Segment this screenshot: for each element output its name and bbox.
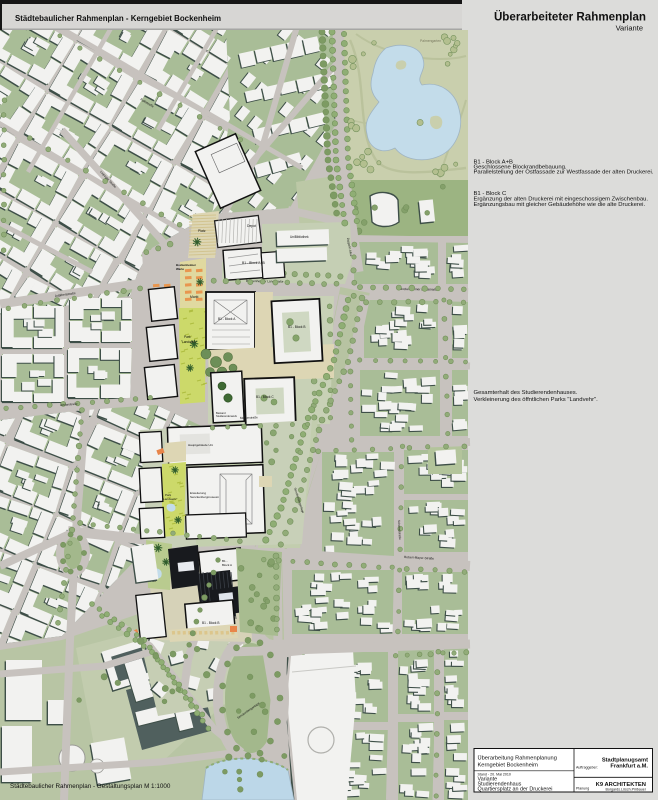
svg-text:Überarbeiteter Rahmenplan: Überarbeiteter Rahmenplan: [494, 11, 646, 24]
svg-text:B1 - Block C: B1 - Block C: [256, 395, 274, 399]
svg-text:B1 - Block B: B1 - Block B: [288, 325, 306, 329]
svg-text:B1 - Block A: B1 - Block A: [218, 317, 236, 321]
svg-text:Bockenheimer Landstraße: Bockenheimer Landstraße: [400, 287, 438, 292]
svg-text:Markt: Markt: [190, 295, 199, 299]
svg-text:Städtebaulicher Rahmenplan - K: Städtebaulicher Rahmenplan - Kerngebiet …: [15, 14, 221, 23]
svg-text:Warte: Warte: [176, 267, 184, 271]
svg-text:Variante: Variante: [616, 23, 643, 32]
svg-text:Block A: Block A: [222, 563, 232, 567]
svg-text:Mertonstraße: Mertonstraße: [240, 415, 258, 420]
svg-text:Überarbeitung Rahmenplanung: Überarbeitung Rahmenplanung: [478, 755, 557, 762]
svg-text:Gesamterhalt des Studierendenh: Gesamterhalt des Studierendenhauses.: [474, 390, 578, 396]
svg-text:Planung: Planung: [576, 787, 589, 791]
svg-text:B1 - Block B: B1 - Block B: [202, 621, 220, 625]
svg-text:B1 - Block A+B: B1 - Block A+B: [242, 261, 265, 265]
svg-text:Frankfurt a.M.: Frankfurt a.M.: [610, 763, 648, 769]
svg-text:"Landwehr": "Landwehr": [181, 340, 197, 344]
svg-text:Senckenbergmuseum: Senckenbergmuseum: [190, 495, 220, 499]
svg-text:Parallelstellung der Ostfassad: Parallelstellung der Ostfassade zur West…: [474, 170, 654, 176]
svg-text:UniBibliothek: UniBibliothek: [290, 235, 309, 239]
svg-text:Park: Park: [184, 335, 191, 339]
svg-text:Städtebaulicher Rahmenplan - G: Städtebaulicher Rahmenplan - Gestaltungs…: [10, 783, 171, 790]
svg-text:Ergänzungsbau mit gleicher Geb: Ergänzungsbau mit gleicher Gebäudehöhe w…: [474, 202, 646, 208]
svg-text:Depot: Depot: [247, 224, 256, 228]
svg-text:Kerngebiet Bockenheim: Kerngebiet Bockenheim: [478, 762, 539, 768]
svg-text:Palmengarten: Palmengarten: [420, 39, 441, 43]
svg-text:"Landwehr": "Landwehr": [162, 497, 177, 501]
svg-text:Borgards.Lösch.Piribauer: Borgards.Lösch.Piribauer: [605, 788, 646, 792]
svg-text:Studierendenwerk: Studierendenwerk: [216, 414, 238, 418]
svg-text:Hauptgebäude Uni: Hauptgebäude Uni: [188, 443, 213, 447]
svg-text:Platz: Platz: [198, 229, 206, 233]
svg-text:Auftraggeber:: Auftraggeber:: [576, 765, 598, 769]
svg-text:Verkleinerung des öffntlichen: Verkleinerung des öffntlichen Parks "Lan…: [474, 397, 599, 403]
svg-text:Quartiersplatz an der Druckere: Quartiersplatz an der Druckerei: [478, 787, 553, 793]
